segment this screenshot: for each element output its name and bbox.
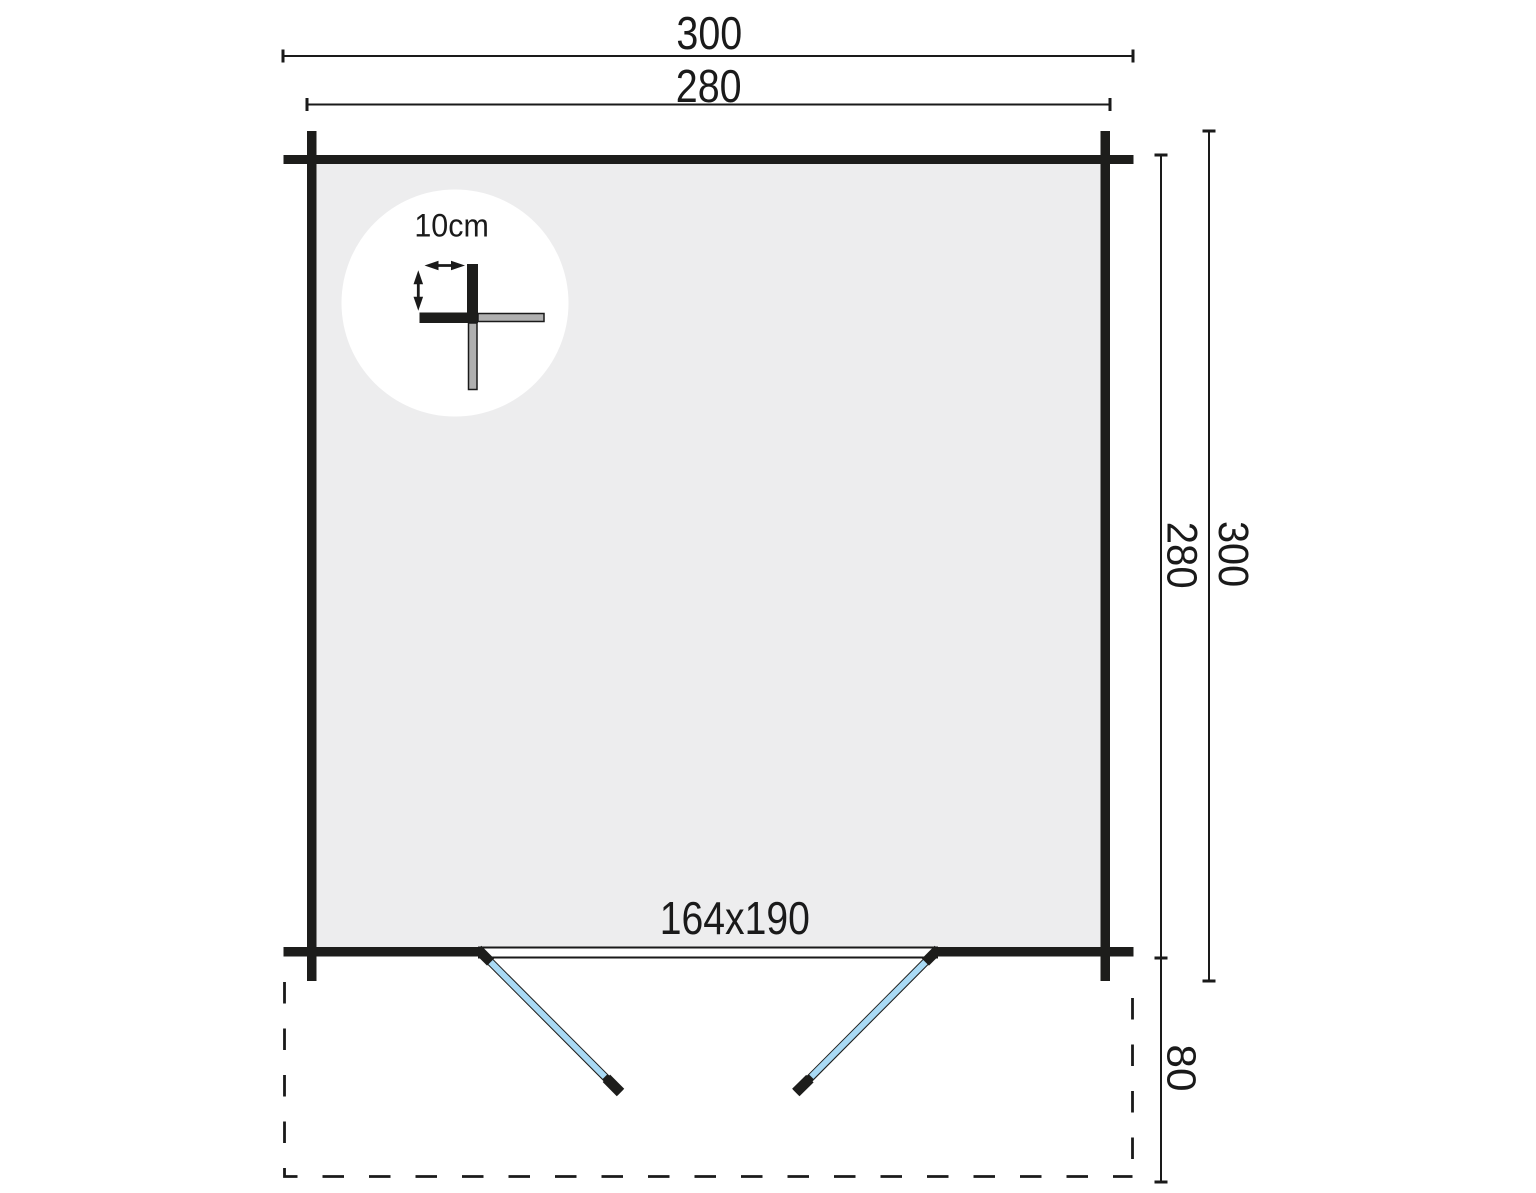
svg-text:300: 300 [1210, 521, 1257, 587]
svg-text:280: 280 [1158, 522, 1205, 589]
svg-text:164x190: 164x190 [660, 893, 810, 945]
svg-text:280: 280 [676, 61, 742, 113]
svg-text:10cm: 10cm [414, 208, 488, 244]
svg-text:300: 300 [676, 8, 742, 60]
svg-text:80: 80 [1158, 1044, 1204, 1091]
